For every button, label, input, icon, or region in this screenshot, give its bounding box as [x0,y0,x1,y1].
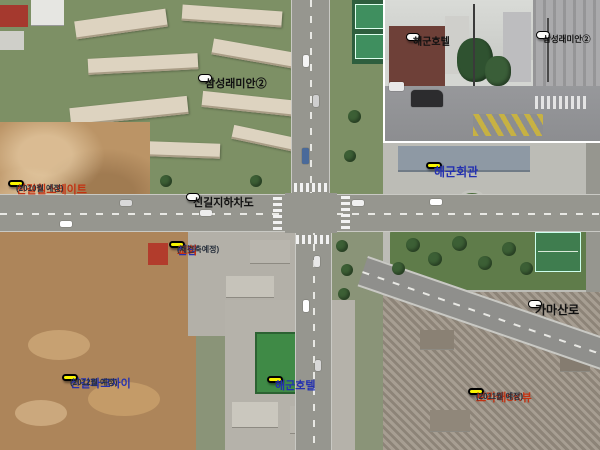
label-singil-parkxi: 신길파크자이 (2012월 예정) [62,374,78,381]
tree [160,175,172,187]
inset-label-navy-hotel-text: 해군호텔 [413,37,450,49]
inset-black-car [411,90,443,107]
crosswalk [294,183,328,192]
label-singil-underpass: 신길지하차도 [186,193,200,201]
tree [428,252,442,266]
lane-dashes [310,0,312,200]
tree [341,264,353,276]
crosswalk [341,196,350,229]
church-red-roof [148,243,168,265]
label-navy-hall: 해군회관 [426,162,442,169]
building [226,276,274,298]
satellite-map: 해군호텔 삼성래미안② 삼성래미안② 신길힐스테이트 (2010월 예정) 신길… [0,0,600,450]
inset-crosswalk [535,96,589,109]
tree [250,175,262,187]
tree [336,240,348,252]
label-singil-underpass-text: 신길지하차도 [193,197,254,210]
ruin-building [430,410,470,432]
car [200,210,212,216]
bus [302,148,309,164]
label-navy-hall-text: 해군회관 [434,166,478,180]
tennis-court [535,232,581,272]
tree [344,150,356,162]
label-singil-parkxi-sub: (2012월 예정) [70,378,117,388]
dirt-mound [15,400,67,426]
inset-label-navy-hotel: 해군호텔 [406,33,420,41]
car [315,360,321,371]
utility-pole [473,4,475,92]
tree [520,262,533,275]
label-boramae-skview-sub: (2011월 예정) [476,392,523,402]
tree [348,110,361,123]
tree [478,256,492,270]
label-gamasan-ro-text: 가마산로 [535,304,579,318]
court-line [538,251,578,252]
vertical-road-north [291,0,330,200]
inset-car [389,82,404,91]
building [250,240,290,264]
tree [452,236,467,251]
car [303,300,309,312]
gray-building [0,31,24,50]
car [60,221,72,227]
inset-label-samsung-raemian: 삼성래미안② [536,31,550,39]
building [232,402,278,428]
car [120,200,132,206]
tree [406,238,420,252]
label-singil-hillstate: 신길힐스테이트 (2010월 예정) [8,180,24,187]
car [303,55,309,67]
inset-yellow-marking [473,114,543,136]
crosswalk [273,197,282,230]
ruin-building [420,330,454,350]
tree [392,262,405,275]
inset-label-samsung-raemian-text: 삼성래미안② [543,35,591,45]
car [313,95,319,107]
intersection [285,193,337,233]
tree [502,242,516,256]
label-navy-hotel-text: 해군호텔 [275,380,315,393]
label-samsung-raemian: 삼성래미안② [198,74,212,82]
utility-pole [547,18,549,82]
label-navy-hotel: 해군호텔 [267,376,283,383]
label-sinnam-church: 신남 교회 (재건축예정) [169,241,185,248]
label-singil-hillstate-sub: (2010월 예정) [16,184,63,194]
dirt-mound [28,330,90,360]
car [314,256,320,267]
white-building [31,0,64,26]
street-photo-inset: 해군호텔 삼성래미안② [383,0,600,143]
red-roof-building [0,5,28,27]
label-sinnam-church-sub: (재건축예정) [177,245,219,255]
label-boramae-skview: 보라매SK뷰 (2011월 예정) [468,388,484,395]
car [352,200,364,206]
car [430,199,442,205]
label-gamasan-ro: 가마산로 [528,300,542,308]
inset-tree [485,56,511,86]
crosswalk [296,235,330,244]
label-samsung-raemian-text: 삼성래미안② [205,78,267,91]
tree [338,288,350,300]
